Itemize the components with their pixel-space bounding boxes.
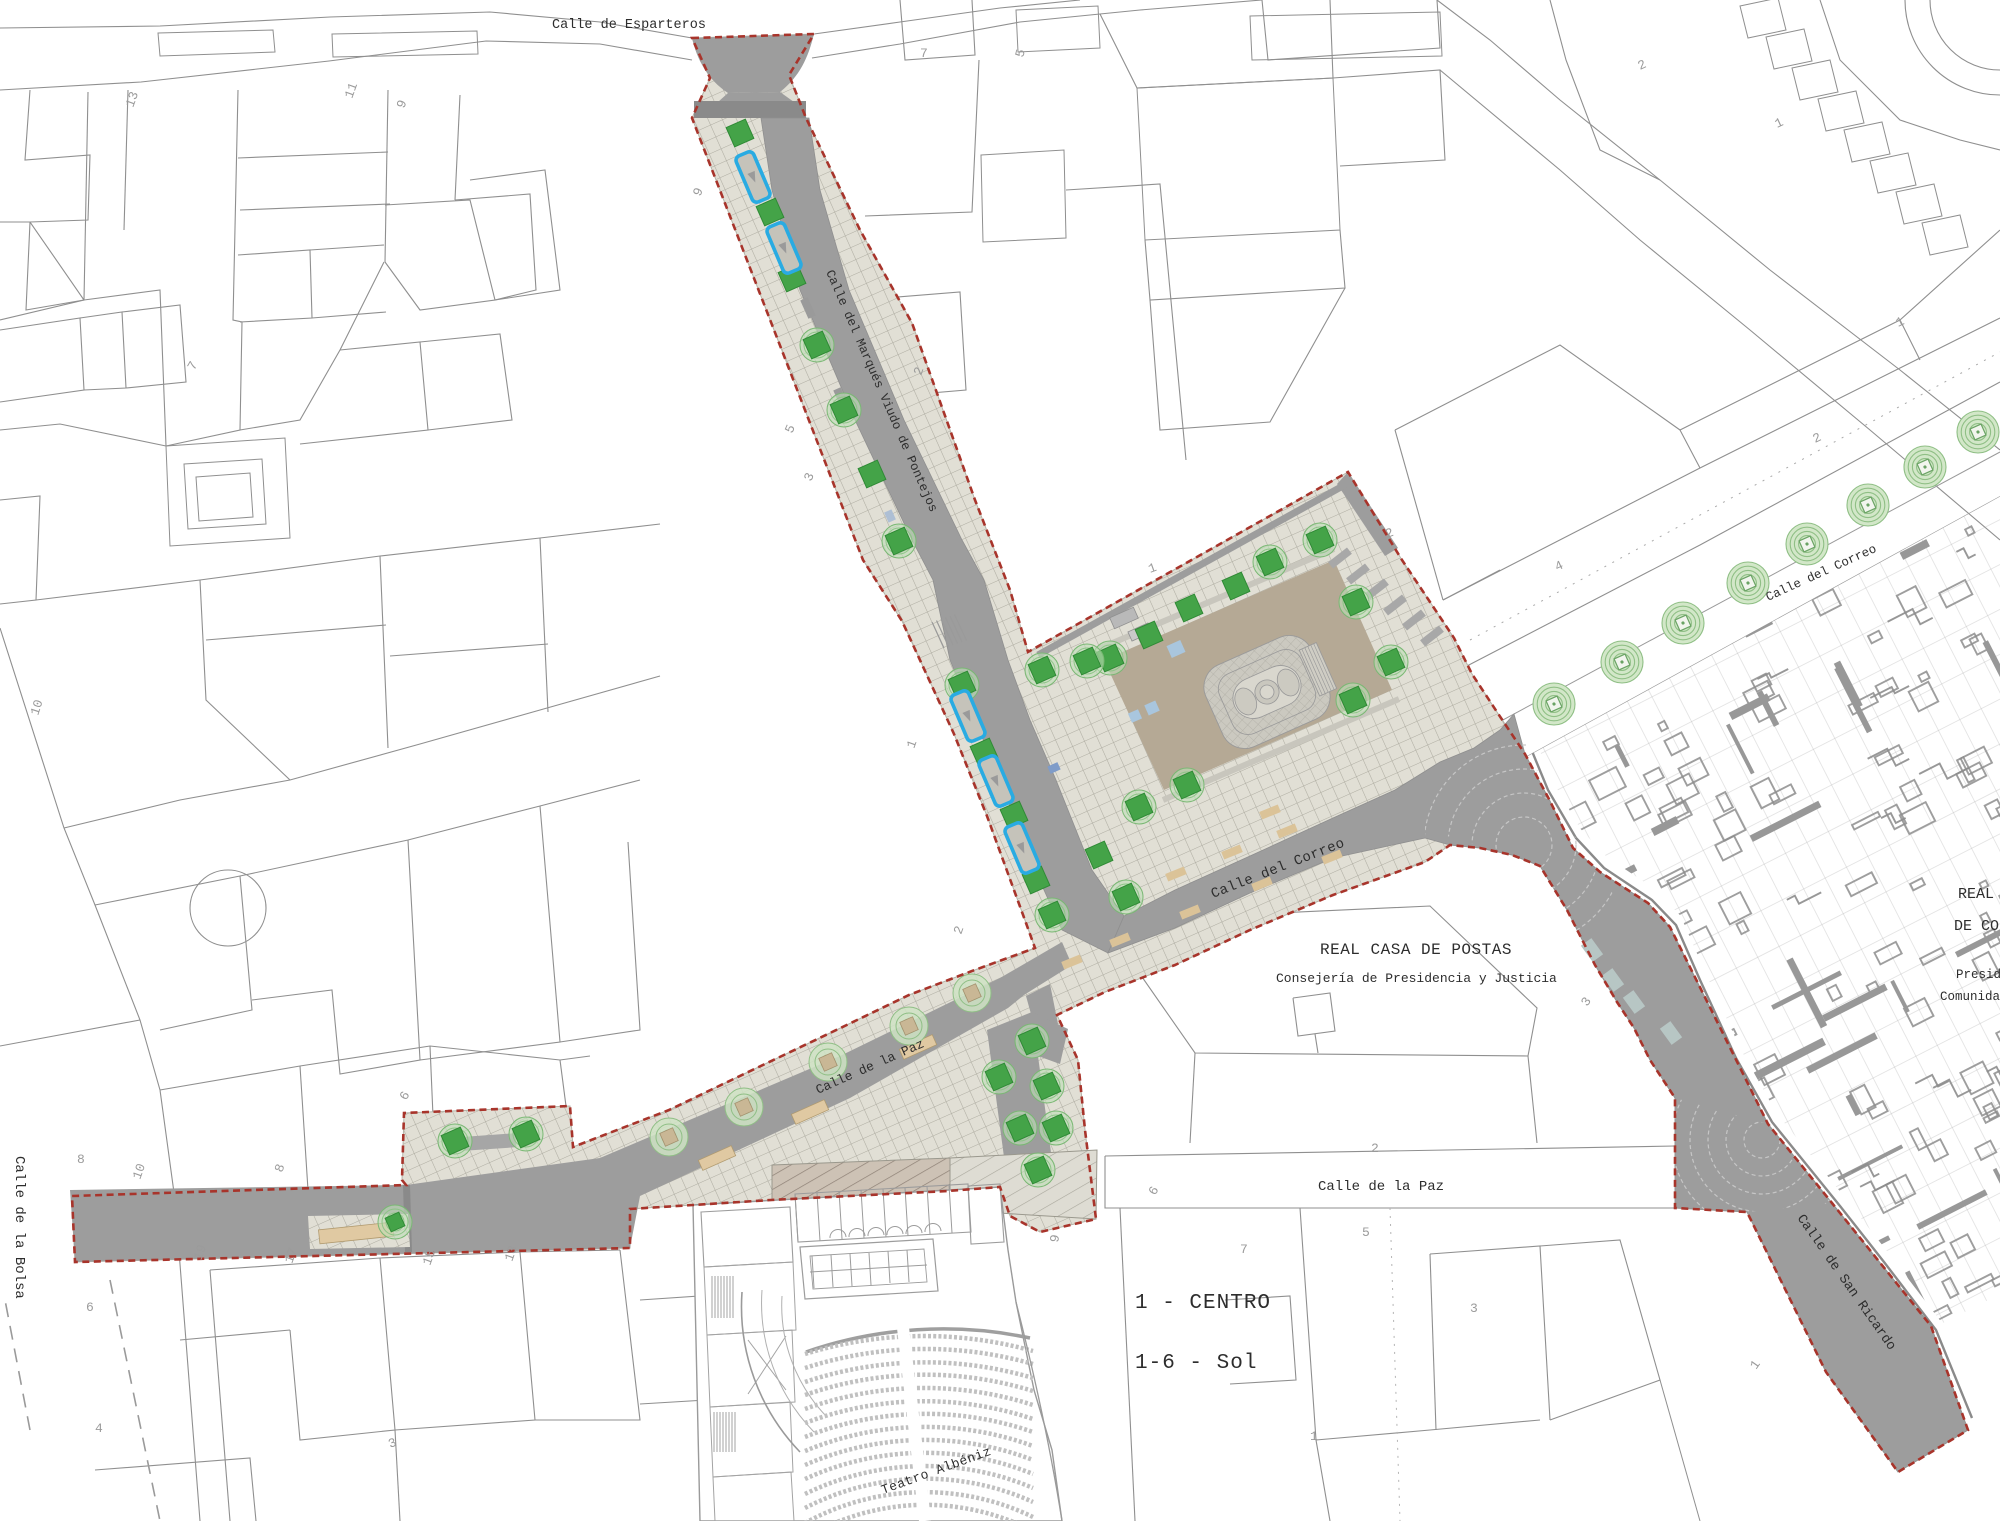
svg-text:Presidencia: Presidencia	[1956, 968, 2000, 982]
svg-text:8: 8	[77, 1152, 85, 1167]
svg-text:DE CORREOS: DE CORREOS	[1954, 918, 2000, 935]
svg-text:6: 6	[86, 1300, 94, 1315]
svg-text:Comunidad de: Comunidad de	[1940, 990, 2000, 1004]
svg-text:7: 7	[1240, 1242, 1248, 1257]
svg-text:2: 2	[1371, 1141, 1379, 1156]
svg-text:Consejería de Presidencia y Ju: Consejería de Presidencia y Justicia	[1276, 971, 1557, 986]
svg-text:4: 4	[95, 1421, 103, 1436]
svg-text:1-6 - Sol: 1-6 - Sol	[1135, 1352, 1257, 1375]
svg-text:5: 5	[1362, 1225, 1370, 1240]
svg-text:Calle de la Bolsa: Calle de la Bolsa	[11, 1156, 27, 1299]
svg-text:1: 1	[1310, 1429, 1318, 1444]
svg-text:7: 7	[920, 46, 928, 61]
svg-text:3: 3	[1470, 1301, 1478, 1316]
svg-text:Calle de la Paz: Calle de la Paz	[1318, 1179, 1444, 1195]
svg-text:Calle de Esparteros: Calle de Esparteros	[552, 18, 706, 33]
svg-text:1 - CENTRO: 1 - CENTRO	[1135, 1292, 1271, 1315]
svg-text:REAL CASA DE POSTAS: REAL CASA DE POSTAS	[1320, 941, 1512, 959]
svg-text:REAL CASA: REAL CASA	[1958, 886, 2000, 903]
